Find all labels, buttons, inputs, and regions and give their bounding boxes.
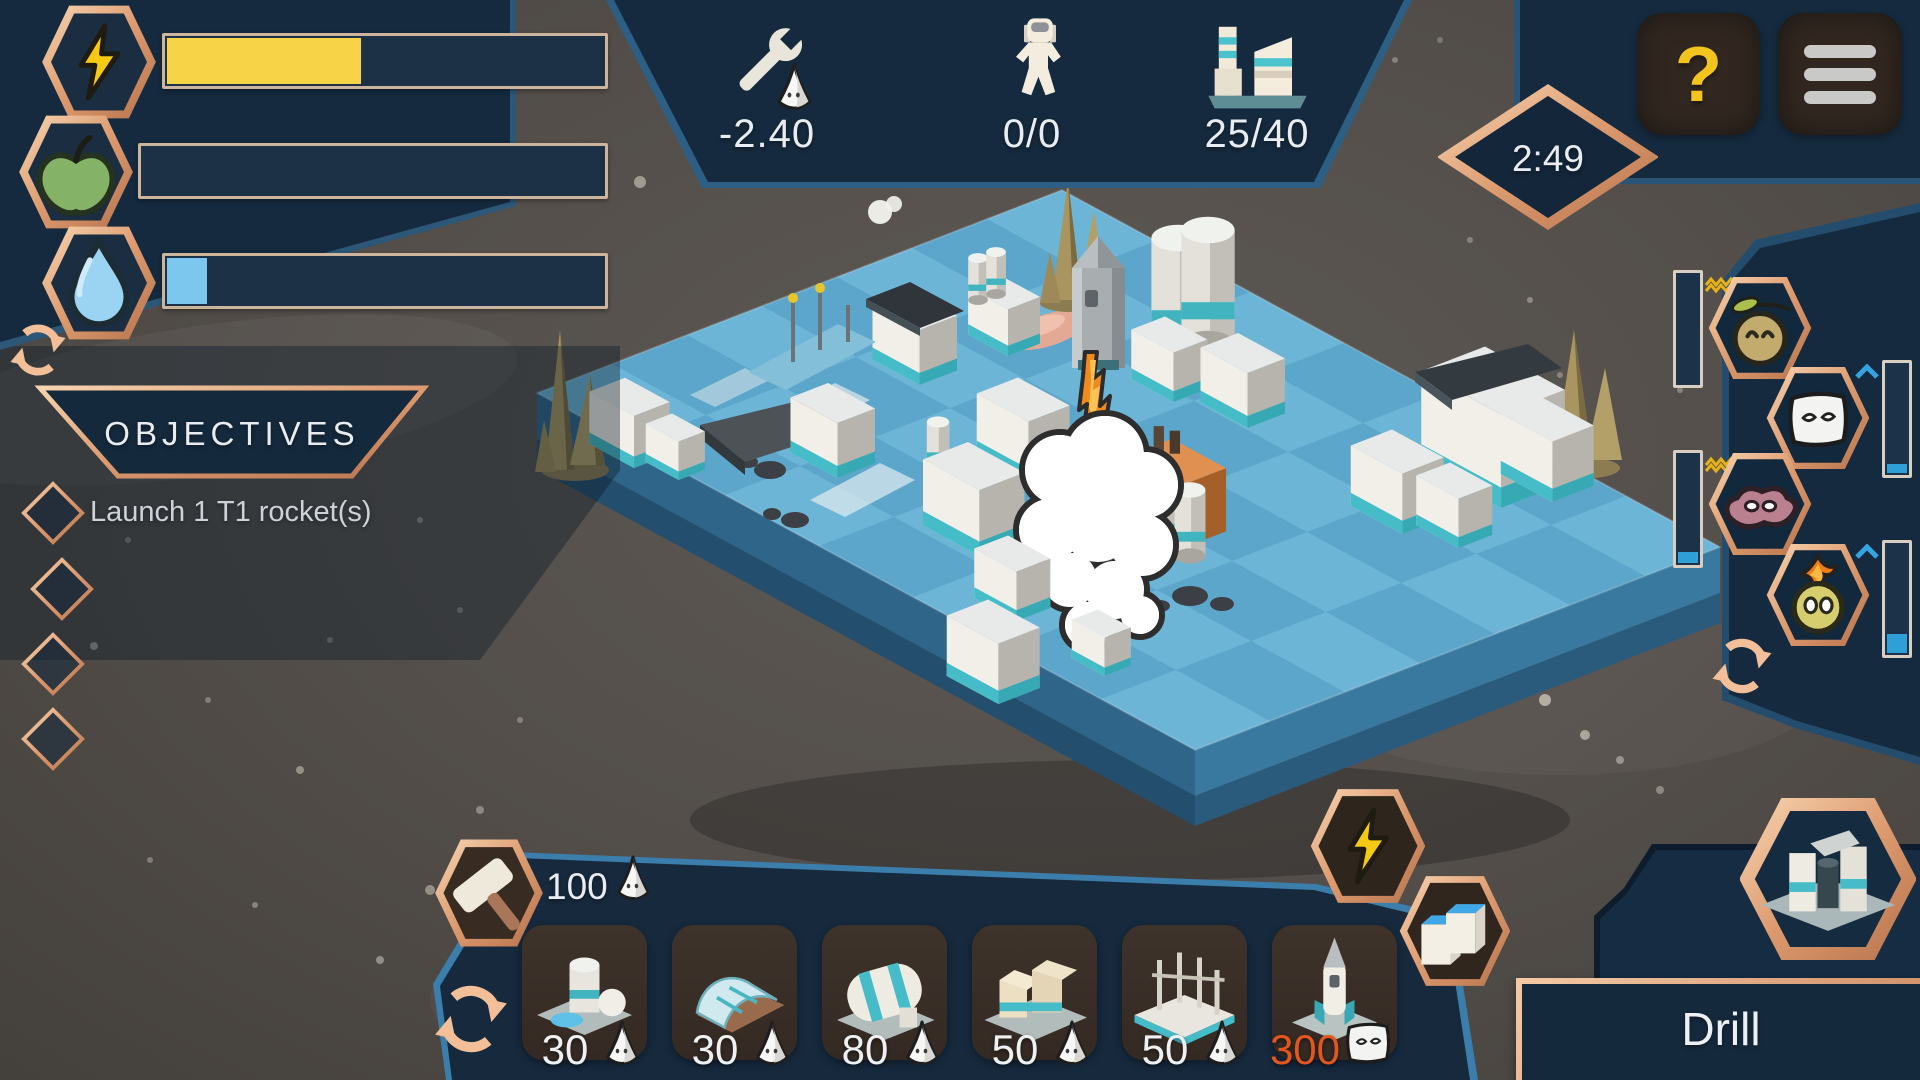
mound-creature-icon bbox=[1197, 1016, 1247, 1070]
cycle-moods-button[interactable] bbox=[1710, 634, 1774, 698]
mound-creature-icon bbox=[897, 1016, 947, 1070]
game-viewport[interactable]: OBJECTIVES Launch 1 T1 rocket(s) -2.40 0… bbox=[0, 0, 1920, 1080]
question-mark-icon: ? bbox=[1637, 13, 1760, 135]
energy-bar-fill bbox=[167, 38, 361, 84]
selected-building-hex[interactable] bbox=[1740, 798, 1916, 960]
energy-hex bbox=[42, 5, 156, 119]
water-bar bbox=[162, 253, 608, 309]
colonists-value: 0/0 bbox=[947, 112, 1117, 157]
food-hex bbox=[19, 115, 133, 229]
leaf-creature-gauge bbox=[1673, 270, 1703, 388]
selection-label: Drill bbox=[1522, 1002, 1920, 1056]
stats-bar: -2.40 0/0 25/40 bbox=[600, 0, 1360, 190]
objective-checkbox bbox=[20, 480, 86, 546]
fire-creature-gauge bbox=[1882, 540, 1912, 658]
mound-creature-icon bbox=[608, 851, 658, 905]
white-creature-gauge bbox=[1882, 360, 1912, 478]
meat-creature-hex[interactable] bbox=[1708, 452, 1812, 556]
objective-checkbox bbox=[20, 706, 86, 772]
mound-creature-icon bbox=[1047, 1016, 1097, 1070]
help-button[interactable]: ? bbox=[1637, 13, 1760, 135]
leaf-creature-hex[interactable] bbox=[1708, 276, 1812, 380]
mound-creature-icon bbox=[747, 1016, 797, 1070]
timer-value: 2:49 bbox=[1438, 138, 1658, 180]
fire-creature-hex[interactable] bbox=[1766, 543, 1870, 647]
cycle-build-button[interactable] bbox=[432, 980, 510, 1058]
card-cost: 300 bbox=[1257, 1026, 1353, 1074]
menu-button[interactable] bbox=[1778, 13, 1902, 135]
tab-research-buildings[interactable] bbox=[1399, 875, 1511, 987]
factory-icon bbox=[1200, 16, 1315, 116]
objectives-title: OBJECTIVES bbox=[26, 415, 438, 453]
objectives-panel: OBJECTIVES Launch 1 T1 rocket(s) bbox=[0, 370, 480, 790]
resource-panel bbox=[0, 0, 620, 360]
astronaut-icon bbox=[1000, 8, 1080, 112]
buildings-value: 25/40 bbox=[1172, 112, 1342, 157]
white-creature-icon bbox=[1340, 1016, 1396, 1068]
objective-checkbox bbox=[29, 556, 95, 622]
objective-checkbox bbox=[20, 631, 86, 697]
mound-creature-icon bbox=[597, 1016, 647, 1070]
selection-label-panel: Drill bbox=[1516, 978, 1920, 1080]
energy-bar bbox=[162, 33, 608, 89]
mood-panel bbox=[1640, 230, 1920, 710]
maintenance-value: -2.40 bbox=[682, 112, 852, 157]
meat-creature-icon bbox=[1727, 488, 1796, 526]
white-creature-icon bbox=[1790, 394, 1846, 445]
objective-label: Launch 1 T1 rocket(s) bbox=[90, 496, 450, 529]
leaf-creature-icon bbox=[1731, 295, 1789, 363]
meat-creature-gauge bbox=[1673, 450, 1703, 568]
wrench-icon bbox=[715, 14, 825, 124]
water-bar-fill bbox=[167, 258, 207, 304]
currency-amount: 100 bbox=[546, 866, 608, 908]
food-bar bbox=[138, 143, 608, 199]
